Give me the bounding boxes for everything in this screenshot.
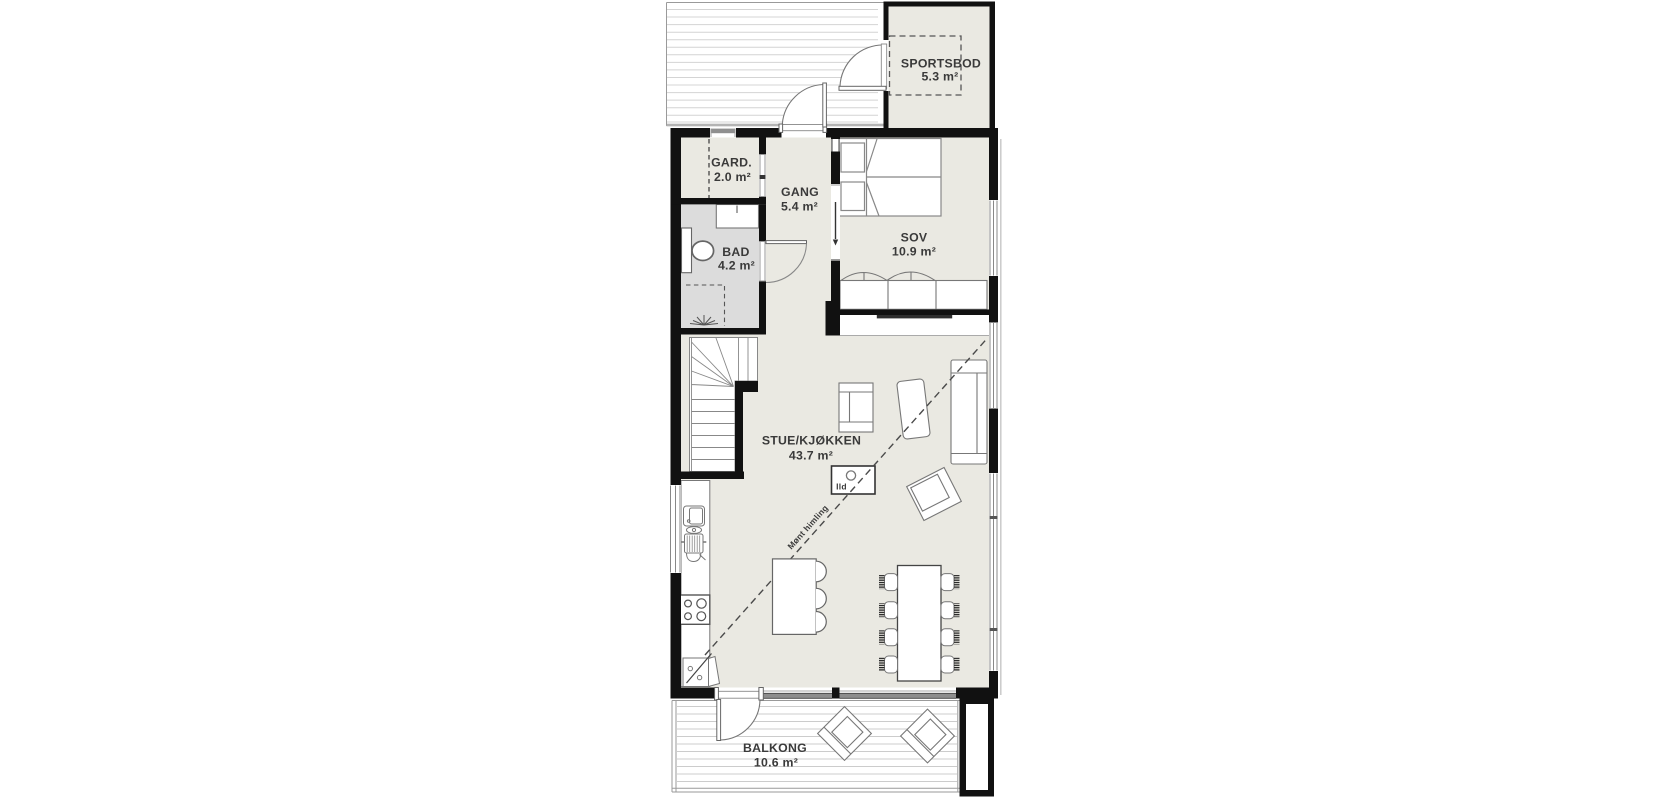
svg-text:BAD: BAD [722,245,749,259]
svg-text:SOV: SOV [901,231,928,245]
svg-text:SPORTSBOD: SPORTSBOD [901,56,981,70]
svg-text:Ild: Ild [836,482,847,492]
svg-text:5.3 m²: 5.3 m² [921,70,958,84]
svg-text:10.9 m²: 10.9 m² [892,244,936,258]
svg-text:GANG: GANG [781,185,819,199]
svg-text:GARD.: GARD. [711,155,752,169]
svg-text:43.7 m²: 43.7 m² [789,448,833,462]
svg-text:2.0 m²: 2.0 m² [714,170,751,184]
svg-text:4.2 m²: 4.2 m² [718,258,755,272]
svg-text:5.4 m²: 5.4 m² [781,199,818,213]
svg-text:BALKONG: BALKONG [743,741,807,755]
svg-text:10.6 m²: 10.6 m² [754,755,798,769]
svg-text:STUE/KJØKKEN: STUE/KJØKKEN [762,433,861,447]
